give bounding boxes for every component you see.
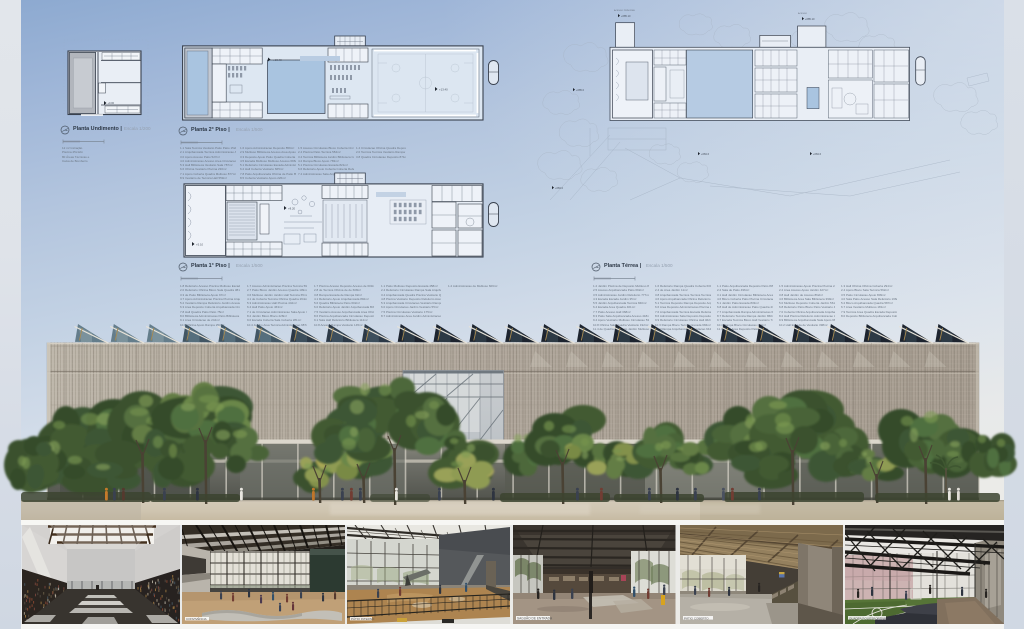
- svg-text:CONVIVÊNCIA: CONVIVÊNCIA: [186, 616, 207, 621]
- svg-text:PÁTIO INTERNO: PÁTIO INTERNO: [351, 617, 375, 621]
- svg-text:PÁTIO COBERTO: PÁTIO COBERTO: [684, 616, 709, 620]
- svg-text:QUADRA POLIESPORTIVA: QUADRA POLIESPORTIVA: [849, 616, 886, 620]
- svg-text:SAGUÃO DE ENTRADA: SAGUÃO DE ENTRADA: [517, 616, 553, 621]
